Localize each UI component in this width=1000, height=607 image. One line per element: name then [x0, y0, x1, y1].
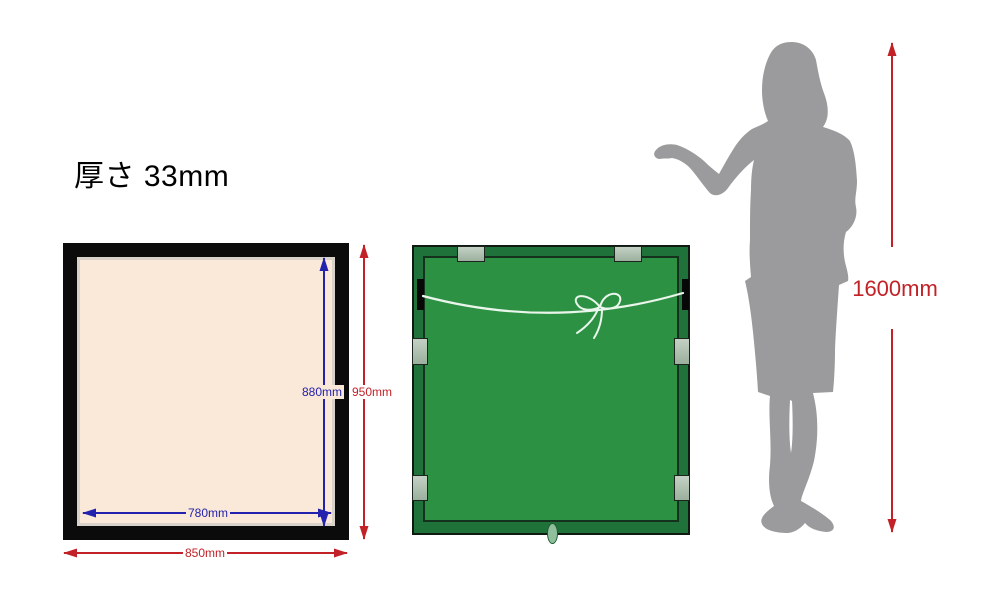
front-frame-mat	[77, 257, 335, 526]
dim-label-inner-width: 780mm	[186, 506, 230, 520]
person-silhouette-shape	[654, 42, 857, 533]
dim-label-outer-width: 850mm	[183, 546, 227, 560]
dim-label-person-height: 1600mm	[852, 276, 938, 302]
wire-bow-right-loop	[600, 294, 620, 309]
person-silhouette	[648, 38, 867, 537]
dim-label-inner-height: 880mm	[300, 385, 344, 399]
wire-bow-left-loop	[576, 296, 600, 310]
spec-line-thickness: 厚さ 33mm	[74, 158, 320, 195]
dim-label-outer-height: 950mm	[350, 385, 394, 399]
hanging-wire-string	[423, 293, 683, 313]
bottom-oval-fitting	[547, 523, 558, 544]
